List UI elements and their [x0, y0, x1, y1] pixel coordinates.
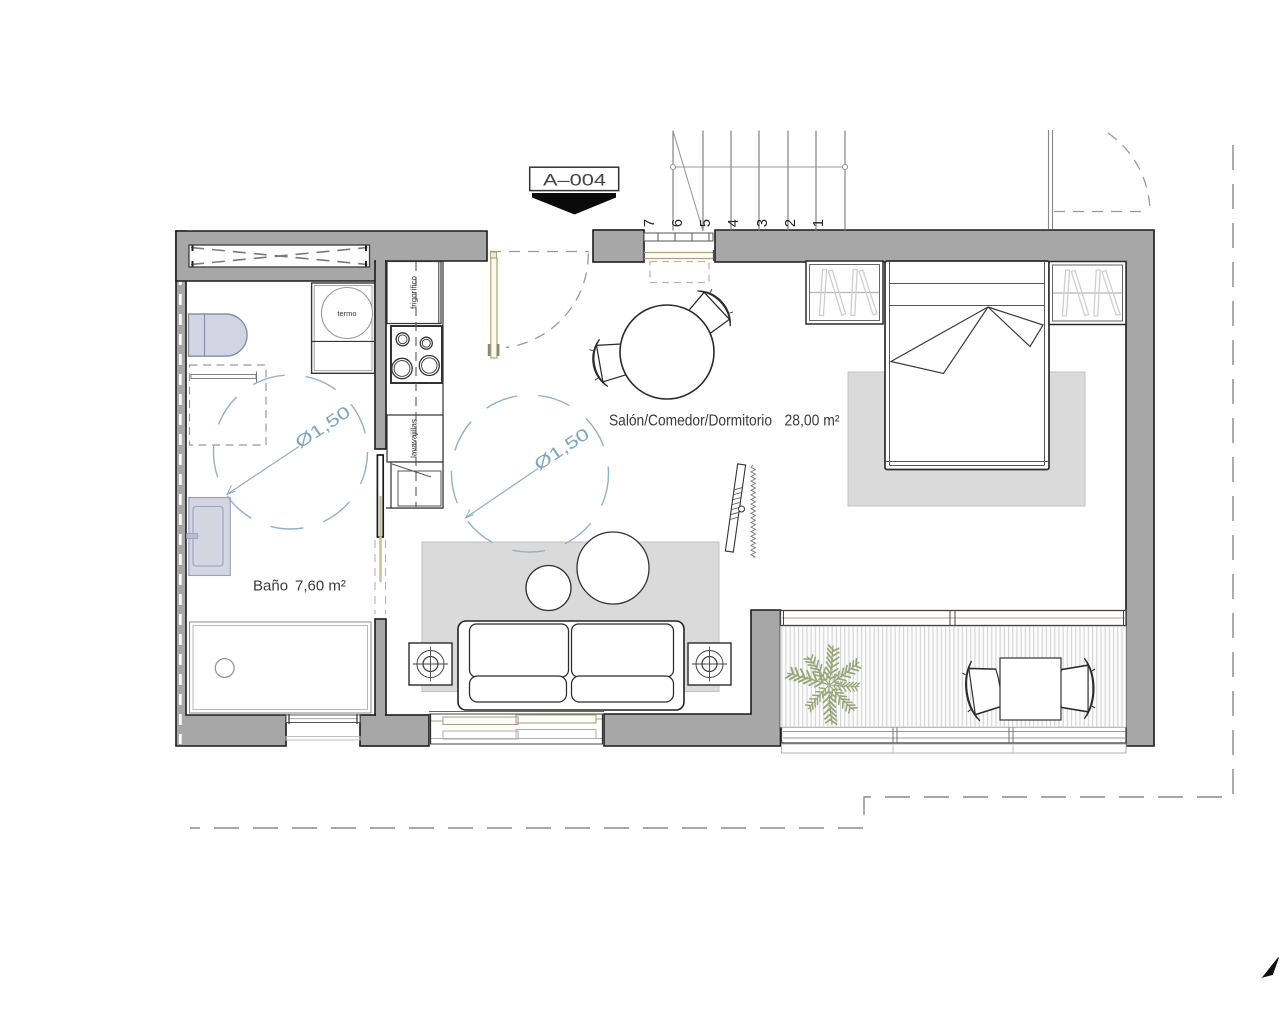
svg-text:A–004: A–004 [543, 171, 606, 190]
svg-text:Ø1,50: Ø1,50 [292, 402, 354, 452]
svg-text:28,00 m²: 28,00 m² [785, 413, 840, 430]
svg-text:1: 1 [811, 219, 827, 227]
svg-text:Ø1,50: Ø1,50 [531, 424, 593, 474]
svg-text:4: 4 [726, 219, 742, 227]
svg-text:Baño: Baño [253, 578, 288, 595]
svg-text:6: 6 [670, 219, 686, 227]
svg-text:2: 2 [783, 219, 799, 227]
svg-text:5: 5 [698, 219, 714, 227]
svg-text:3: 3 [755, 219, 771, 227]
svg-text:termo: termo [337, 309, 356, 318]
svg-text:Salón/Comedor/Dormitorio: Salón/Comedor/Dormitorio [609, 413, 772, 430]
svg-text:frigorífico: frigorífico [410, 276, 419, 309]
svg-text:7,60 m²: 7,60 m² [295, 578, 346, 595]
svg-text:7: 7 [642, 219, 658, 227]
svg-text:lavavajillas: lavavajillas [410, 419, 419, 458]
